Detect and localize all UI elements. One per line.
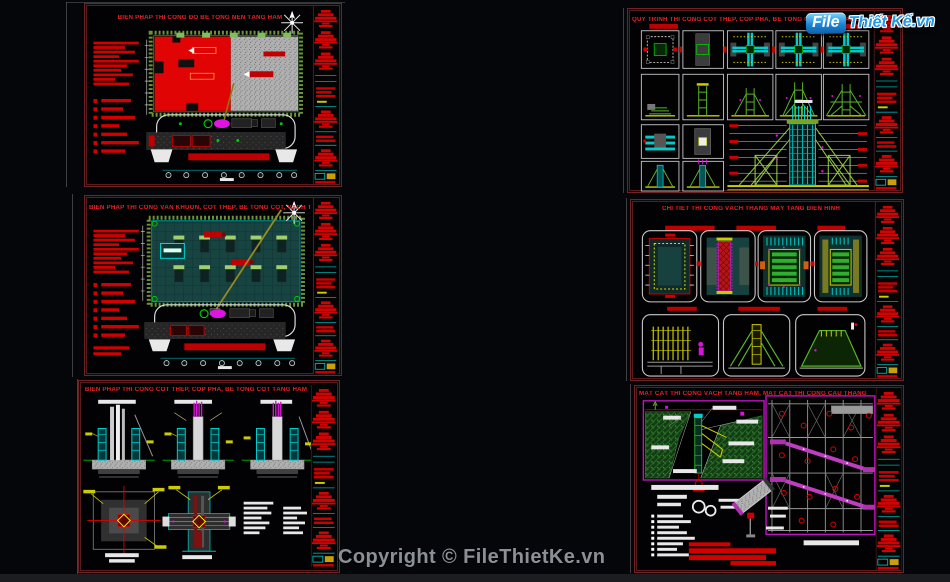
ramp-icon (151, 149, 173, 162)
title-block-strip (875, 202, 900, 378)
sheet-title: MẶT CẮT THI CÔNG VÁCH TẦNG HẦM, MẶT CẮT … (639, 391, 867, 398)
frame-line (626, 198, 627, 381)
vertical-dimension (141, 226, 145, 301)
red-note-bars (689, 542, 776, 565)
sheet-lift-core-wall-details[interactable]: CHI TIẾT THI CÔNG VÁCH THANG MÁY TẦNG ĐI… (630, 199, 904, 381)
note-bar (184, 343, 265, 350)
retaining-wall-strip (147, 133, 285, 150)
detail-label-bars (665, 226, 845, 231)
sheet-title: BIỆN PHÁP THI CÔNG CỐT THÉP, CỐP PHA, BÊ… (83, 387, 309, 394)
vertical-dimension (145, 40, 149, 115)
cad-preview-canvas: BIỆN PHÁP THI CÔNG ĐỔ BÊ TÔNG NỀN TẦNG H… (0, 0, 950, 582)
sequence-panels-row1 (641, 31, 869, 69)
frame-line (630, 384, 631, 573)
column-elevation-detail (242, 401, 313, 477)
staircase-section-panel (766, 396, 875, 535)
wall-plan-2 (707, 238, 750, 295)
frame-line (72, 194, 73, 377)
wall-plan-1 (645, 234, 693, 298)
concrete-pump-icon (214, 119, 230, 128)
pump-hopper-icon (204, 120, 212, 128)
wall-plan-3 (760, 236, 808, 297)
logo-badge: File (806, 12, 846, 34)
copyright-watermark: Copyright © FileThietKe.vn (338, 546, 605, 569)
frame-line (66, 2, 67, 187)
title-block-strip (311, 385, 337, 567)
frame-line (623, 8, 624, 193)
sheet-title: CHI TIẾT THI CÔNG VÁCH THANG MÁY TẦNG ĐI… (635, 206, 867, 213)
sheet-basement-slab-pour-plan[interactable]: BIỆN PHÁP THI CÔNG ĐỔ BÊ TÔNG NỀN TẦNG H… (84, 3, 342, 187)
column-elevation-detail (83, 405, 154, 477)
basement-wall-section-panel (643, 401, 764, 492)
ramp-icon (275, 149, 297, 162)
sequence-panels-row3 (641, 125, 723, 191)
title-block-strip (313, 198, 338, 374)
formwork-cross-plan-detail (162, 486, 235, 559)
site-plan (151, 33, 301, 115)
sheet-title: BIỆN PHÁP THI CÔNG VÁN KHUÔN, CỐT THÉP, … (89, 205, 311, 212)
wall-plan-4 (819, 236, 862, 297)
retaining-wall-strip (145, 323, 285, 339)
legend-notes (93, 230, 138, 356)
sheet-column-formwork-details[interactable]: BIỆN PHÁP THI CÔNG CỐT THÉP, CỐP PHA, BÊ… (78, 380, 340, 573)
formwork-plan-detail (83, 486, 166, 563)
axis-dimension-row (163, 170, 298, 181)
title-block-strip (876, 388, 902, 570)
site-plan (149, 210, 303, 315)
note-bar (188, 153, 269, 160)
sheet-wall-stair-sections[interactable]: MẶT CẮT THI CÔNG VÁCH TẦNG HẦM, MẶT CẮT … (634, 385, 904, 573)
sheet-column-sequence[interactable]: QUY TRÌNH THI CÔNG CỐT THÉP, CỐP PHA, BÊ… (627, 8, 903, 193)
ramp-icon (273, 339, 295, 351)
legend-notes (93, 42, 139, 154)
sequence-panels-row2 (641, 74, 869, 120)
bottom-bar (0, 574, 950, 582)
title-block-strip (313, 6, 338, 184)
bullet-list (651, 515, 695, 557)
sheet-title: BIỆN PHÁP THI CÔNG ĐỔ BÊ TÔNG NỀN TẦNG H… (89, 15, 311, 22)
ramp-icon (149, 339, 171, 351)
column-elevation-detail (162, 401, 233, 477)
concrete-pump-icon (210, 309, 226, 318)
axis-dimension-row (161, 358, 295, 369)
detail-labels (98, 400, 292, 404)
truck-icon (232, 119, 276, 128)
logo-text: Thiết Kế.vn (848, 12, 935, 32)
notes-text-blocks (244, 502, 307, 534)
title-block-strip (874, 11, 899, 190)
detail-label-bars (667, 307, 847, 311)
filethietke-logo: File Thiết Kế.vn (806, 11, 935, 34)
sheet-basement-column-wall-plan[interactable]: BIỆN PHÁP THI CÔNG VÁN KHUÔN, CỐT THÉP, … (84, 195, 342, 376)
